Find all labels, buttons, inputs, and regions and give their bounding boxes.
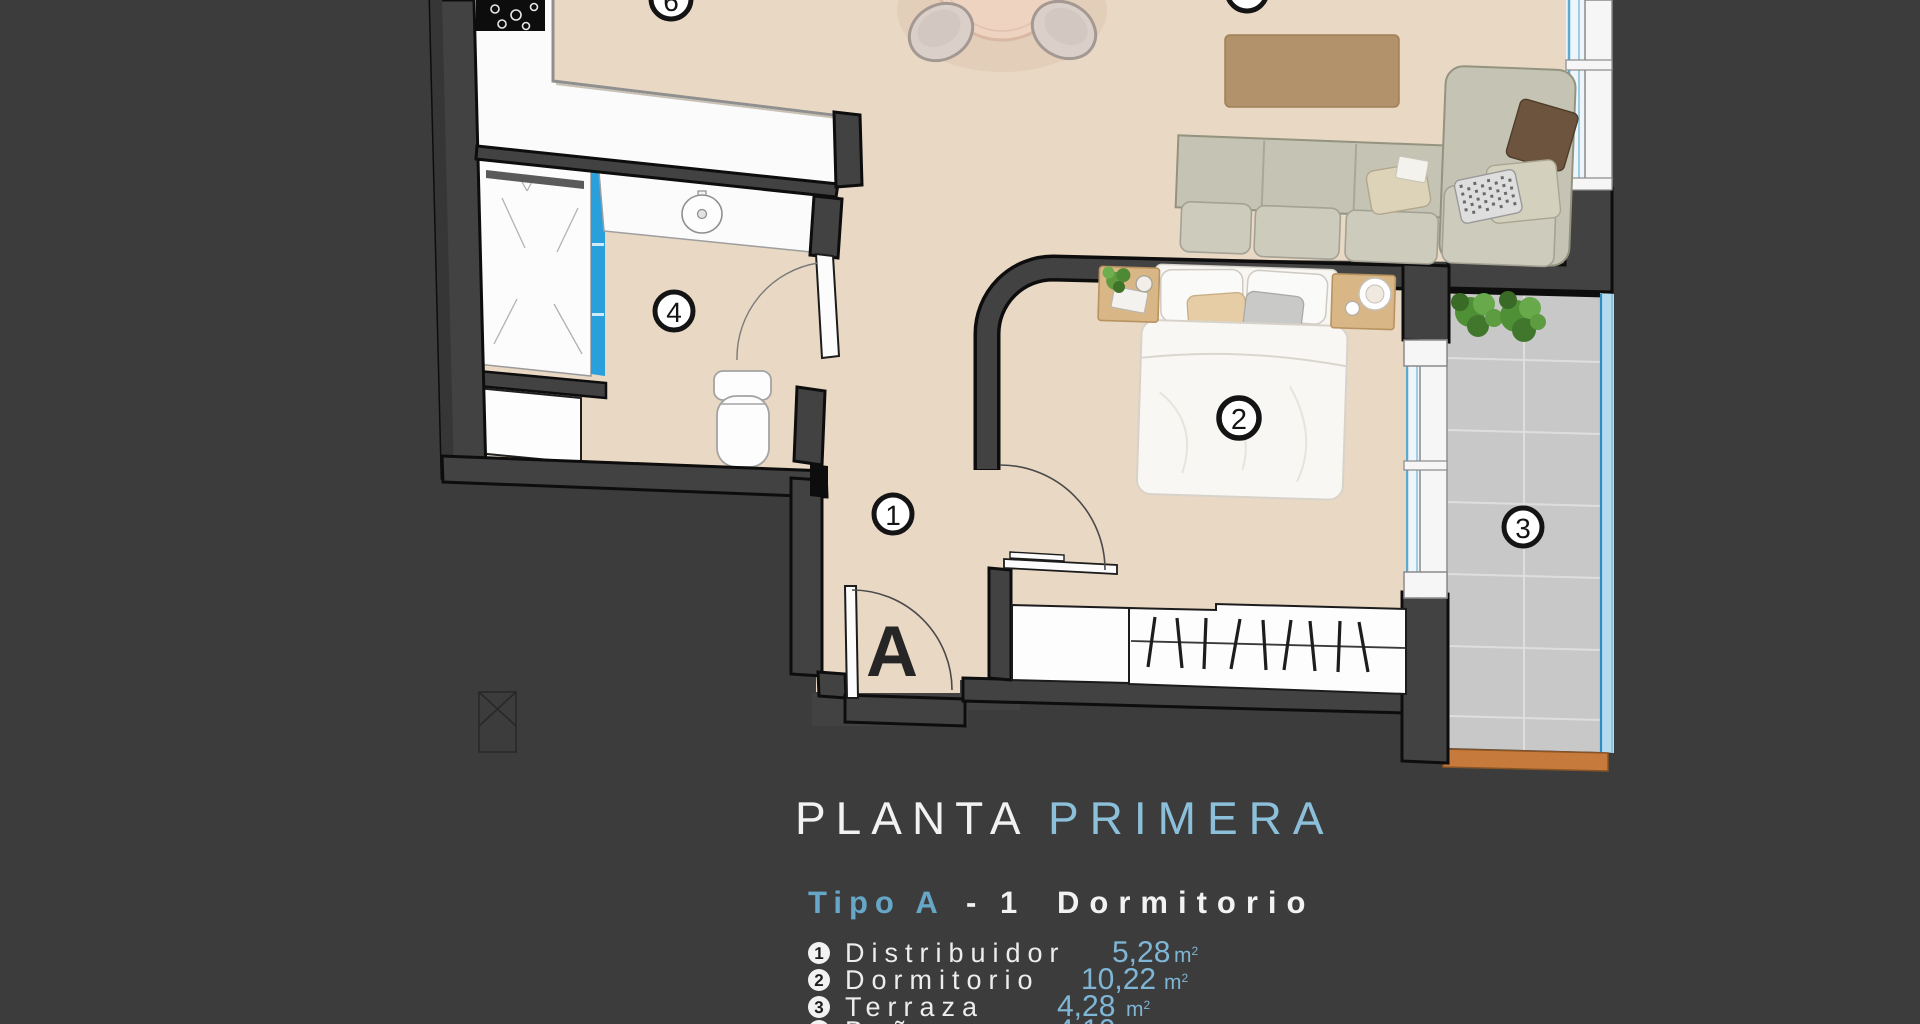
svg-text:Distribuidor: Distribuidor <box>845 938 1066 968</box>
svg-text:PRIMERA: PRIMERA <box>1048 792 1335 844</box>
svg-text:A: A <box>866 612 918 692</box>
svg-text:4: 4 <box>666 297 682 328</box>
svg-text:PLANTA: PLANTA <box>795 792 1031 844</box>
svg-text:-: - <box>966 885 976 920</box>
svg-text:3: 3 <box>1515 513 1531 544</box>
svg-text:Baño: Baño <box>845 1016 936 1024</box>
svg-text:6: 6 <box>663 0 679 17</box>
svg-text:Dormitorio: Dormitorio <box>1057 885 1315 920</box>
svg-text:2: 2 <box>1231 404 1247 436</box>
svg-text:1: 1 <box>814 944 823 963</box>
svg-text:3: 3 <box>814 998 823 1017</box>
svg-text:Tipo A: Tipo A <box>808 885 945 920</box>
svg-text:1: 1 <box>885 500 901 531</box>
svg-text:4,10: 4,10 <box>1057 1014 1115 1024</box>
svg-text:1: 1 <box>1000 885 1017 920</box>
svg-text:Dormitorio: Dormitorio <box>845 965 1040 995</box>
svg-text:2: 2 <box>814 971 823 990</box>
